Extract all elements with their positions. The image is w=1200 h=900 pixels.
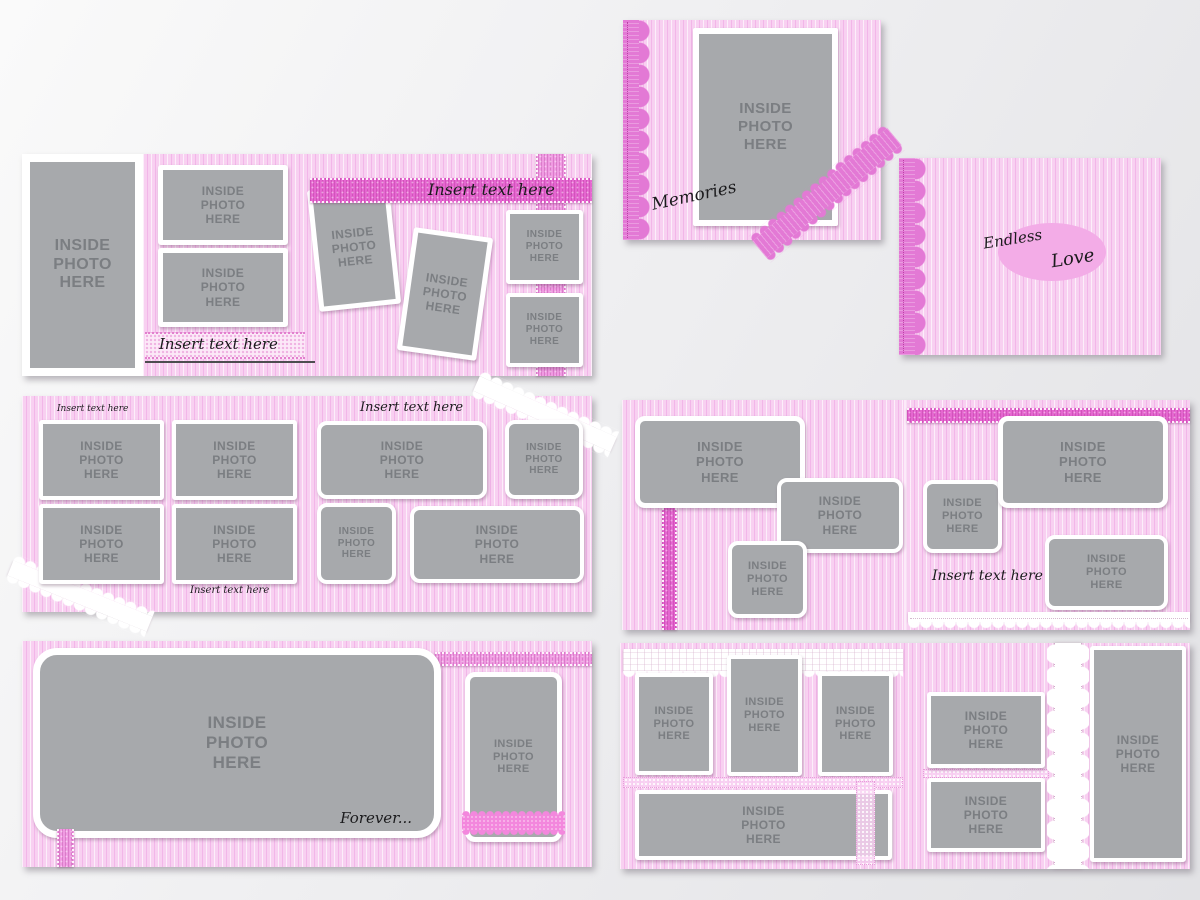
photo-placeholder: INSIDE PHOTO HERE (818, 672, 893, 776)
photo-placeholder: INSIDE PHOTO HERE (172, 420, 297, 500)
photo-placeholder-label: INSIDE PHOTO HERE (741, 804, 785, 846)
photo-placeholder-label: INSIDE PHOTO HERE (818, 494, 862, 536)
insert-text-script: Insert text here (57, 404, 128, 414)
photo-placeholder-label: INSIDE PHOTO HERE (526, 229, 563, 264)
photo-placeholder: INSIDE PHOTO HERE (39, 504, 164, 584)
photo-placeholder-label: INSIDE PHOTO HERE (201, 184, 245, 226)
photo-placeholder-label: INSIDE PHOTO HERE (338, 526, 375, 561)
sheer-ribbon-horizontal (923, 769, 1049, 778)
photo-placeholder-label: INSIDE PHOTO HERE (964, 709, 1008, 751)
photo-placeholder: INSIDE PHOTO HERE (39, 420, 164, 500)
memories-cover-template: INSIDE PHOTO HERE Memories (623, 20, 881, 240)
photo-placeholder: INSIDE PHOTO HERE (998, 416, 1168, 508)
photo-placeholder: INSIDE PHOTO HERE (30, 162, 135, 368)
scallop-edge (623, 20, 639, 240)
photo-placeholder-label: INSIDE PHOTO HERE (420, 270, 470, 318)
photo-placeholder: INSIDE PHOTO HERE (465, 672, 562, 842)
forever-spread-template: INSIDE PHOTO HERE Forever... INSIDE PHOT… (22, 641, 592, 867)
photo-placeholder-label: INSIDE PHOTO HERE (212, 439, 256, 481)
photo-placeholder: INSIDE PHOTO HERE (927, 778, 1045, 852)
photo-placeholder-label: INSIDE PHOTO HERE (79, 439, 123, 481)
photo-placeholder-label: INSIDE PHOTO HERE (475, 523, 519, 565)
page-seam (904, 400, 907, 630)
photo-placeholder-label: INSIDE PHOTO HERE (964, 794, 1008, 836)
photo-placeholder: INSIDE PHOTO HERE (1045, 535, 1168, 610)
sheer-ribbon-vertical (856, 781, 875, 865)
photo-placeholder: INSIDE PHOTO HERE (1090, 646, 1186, 862)
ribbon-horizontal: Insert text here (310, 178, 592, 203)
photo-placeholder: INSIDE PHOTO HERE (728, 541, 807, 618)
photo-placeholder: INSIDE PHOTO HERE (506, 293, 583, 367)
photo-placeholder: INSIDE PHOTO HERE (172, 504, 297, 584)
ribbon-band (462, 815, 565, 831)
photo-placeholder: INSIDE PHOTO HERE (927, 692, 1045, 768)
photo-placeholder-label: INSIDE PHOTO HERE (493, 738, 534, 777)
banner-underline (145, 361, 315, 363)
scrapbook-template-sheet: INSIDE PHOTO HERE INSIDE PHOTO HERE INSI… (0, 0, 1200, 900)
photo-placeholder-label: INSIDE PHOTO HERE (744, 696, 785, 735)
photo-placeholder-label: INSIDE PHOTO HERE (525, 442, 562, 477)
photo-placeholder: INSIDE PHOTO HERE (410, 506, 584, 583)
photo-placeholder-label: INSIDE PHOTO HERE (526, 312, 563, 347)
photo-placeholder-label: INSIDE PHOTO HERE (79, 523, 123, 565)
photo-placeholder-label: INSIDE PHOTO HERE (1059, 439, 1107, 485)
photo-placeholder: INSIDE PHOTO HERE (506, 210, 583, 284)
spread-template-3: INSIDE PHOTO HERE INSIDE PHOTO HERE INSI… (622, 400, 1190, 630)
photo-placeholder: INSIDE PHOTO HERE Forever... (33, 648, 441, 838)
photo-placeholder-label: INSIDE PHOTO HERE (696, 439, 744, 485)
ribbon-vertical (57, 829, 74, 867)
insert-text-script: Insert text here (428, 180, 555, 199)
photo-placeholder-label: INSIDE PHOTO HERE (747, 560, 788, 599)
photo-placeholder-tilted: INSIDE PHOTO HERE (397, 227, 493, 361)
forever-caption: Forever... (340, 809, 412, 827)
photo-placeholder: INSIDE PHOTO HERE (505, 420, 583, 499)
photo-placeholder-label: INSIDE PHOTO HERE (206, 713, 268, 773)
photo-placeholder: INSIDE PHOTO HERE (317, 421, 487, 499)
photo-placeholder: INSIDE PHOTO HERE (158, 248, 288, 327)
photo-placeholder-label: INSIDE PHOTO HERE (53, 237, 112, 294)
photo-placeholder: INSIDE PHOTO HERE (635, 673, 713, 775)
endless-love-cover-template: Endless Love (899, 158, 1161, 355)
photo-placeholder-label: INSIDE PHOTO HERE (380, 439, 424, 481)
insert-text-script: Insert text here (159, 335, 278, 353)
photo-placeholder: INSIDE PHOTO HERE (158, 165, 288, 245)
insert-text-banner: Insert text here (145, 332, 305, 359)
insert-text-script: Insert text here (190, 585, 269, 596)
spread-template-1: INSIDE PHOTO HERE INSIDE PHOTO HERE INSI… (22, 154, 592, 376)
spread-template-4: INSIDE PHOTO HERE INSIDE PHOTO HERE INSI… (620, 643, 1190, 869)
photo-placeholder-label: INSIDE PHOTO HERE (212, 523, 256, 565)
photo-placeholder-label: INSIDE PHOTO HERE (654, 705, 695, 744)
lace-ribbon-vertical (1054, 643, 1082, 869)
scallop-edge (899, 158, 915, 355)
photo-placeholder: INSIDE PHOTO HERE (923, 480, 1002, 553)
lace-ribbon-horizontal (908, 612, 1190, 622)
photo-placeholder-label: INSIDE PHOTO HERE (738, 100, 793, 153)
photo-placeholder-label: INSIDE PHOTO HERE (835, 705, 876, 744)
photo-placeholder-label: INSIDE PHOTO HERE (1116, 733, 1160, 775)
insert-text-script: Insert text here (360, 400, 463, 415)
photo-placeholder: INSIDE PHOTO HERE (727, 655, 802, 776)
photo-placeholder-label: INSIDE PHOTO HERE (942, 497, 983, 536)
ribbon-vertical (662, 508, 677, 630)
photo-placeholder-label: INSIDE PHOTO HERE (1086, 553, 1127, 592)
photo-placeholder: INSIDE PHOTO HERE (635, 790, 892, 860)
photo-placeholder: INSIDE PHOTO HERE (317, 503, 396, 584)
ribbon-horizontal (435, 652, 592, 666)
photo-placeholder-label: INSIDE PHOTO HERE (201, 266, 245, 308)
spread-template-2: Insert text here Insert text here Insert… (22, 396, 592, 612)
photo-placeholder-label: INSIDE PHOTO HERE (330, 224, 379, 271)
insert-text-script: Insert text here (932, 568, 1043, 584)
